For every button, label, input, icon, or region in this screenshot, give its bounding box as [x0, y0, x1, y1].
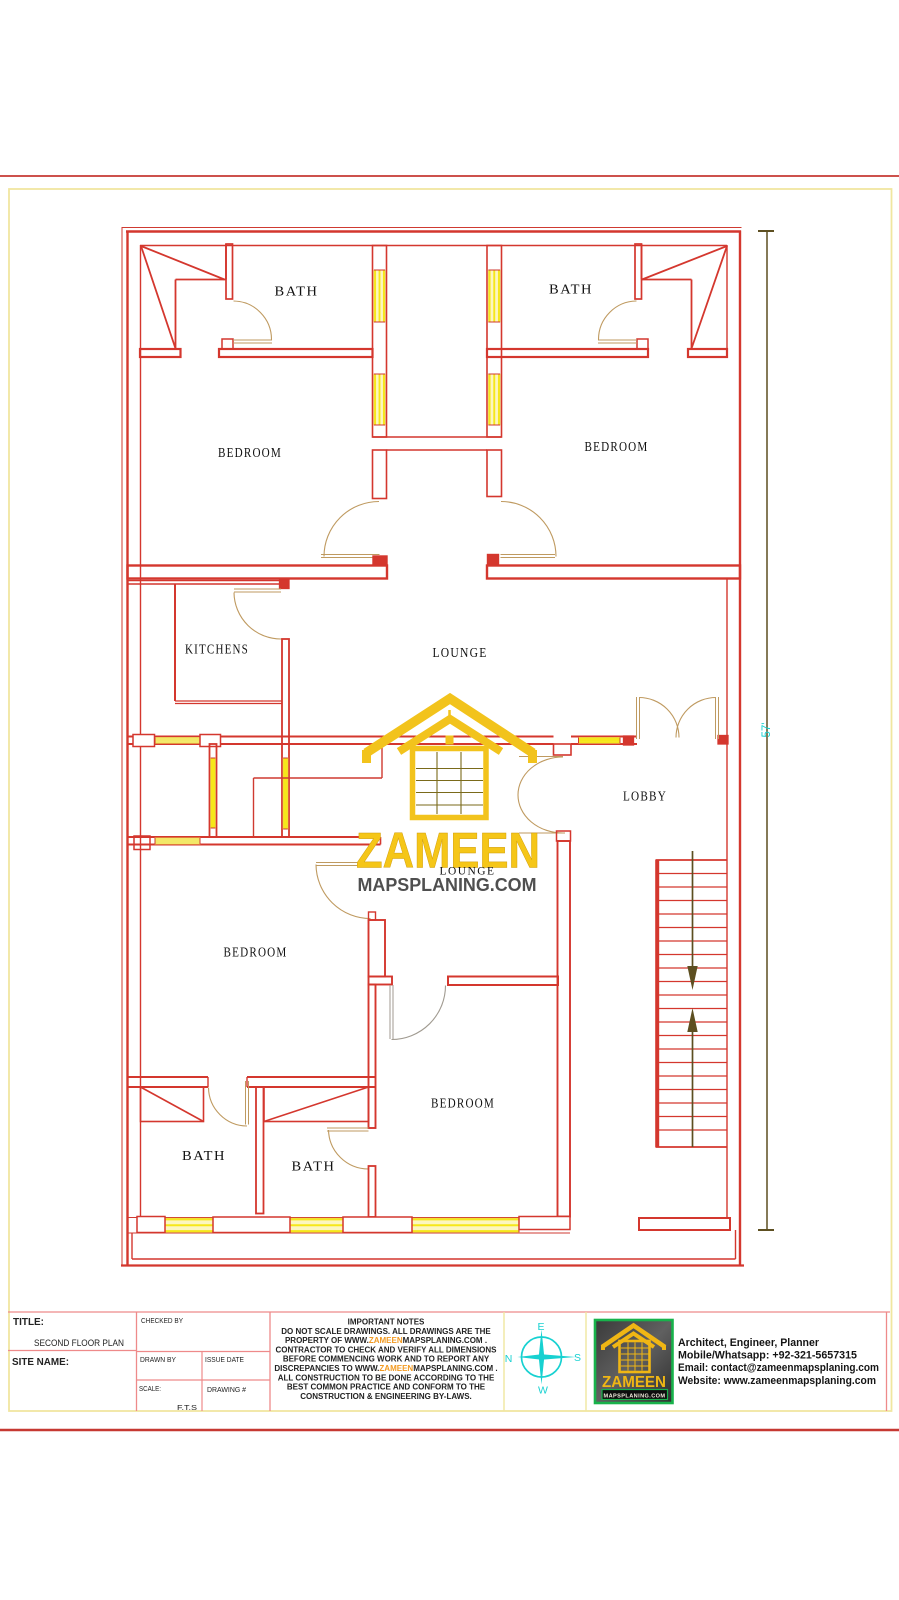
svg-text:LOBBY: LOBBY	[623, 790, 667, 805]
svg-text:PROPERTY OF WWW.ZAMEENMAPSPLA: PROPERTY OF WWW.ZAMEENMAPSPLANING.COM .	[285, 1336, 487, 1345]
svg-text:BEFORE COMMENCING WORK AND TO: BEFORE COMMENCING WORK AND TO REPORT ANY	[283, 1355, 490, 1364]
svg-text:Architect, Engineer, Planner: Architect, Engineer, Planner	[678, 1337, 819, 1349]
svg-text:Website: www.zameenmapsplaning: Website: www.zameenmapsplaning.com	[678, 1375, 876, 1387]
svg-text:LOUNGE: LOUNGE	[440, 866, 496, 878]
svg-text:DRAWN BY: DRAWN BY	[140, 1355, 176, 1364]
svg-text:BATH: BATH	[292, 1159, 336, 1174]
svg-text:BATH: BATH	[549, 283, 593, 298]
svg-text:BEDROOM: BEDROOM	[224, 946, 288, 961]
svg-text:KITCHENS: KITCHENS	[185, 642, 249, 657]
svg-text:SECOND FLOOR PLAN: SECOND FLOOR PLAN	[34, 1338, 124, 1348]
svg-text:ALL CONSTRUCTION TO BE DONE AC: ALL CONSTRUCTION TO BE DONE ACCORDING TO…	[278, 1373, 495, 1382]
svg-text:MAPSPLANING.COM: MAPSPLANING.COM	[604, 1393, 666, 1399]
svg-text:CONSTRUCTION & ENGINEERING BY-: CONSTRUCTION & ENGINEERING BY-LAWS.	[300, 1392, 472, 1401]
svg-text:BEDROOM: BEDROOM	[585, 440, 649, 455]
svg-text:LOUNGE: LOUNGE	[433, 646, 488, 661]
svg-text:BEDROOM: BEDROOM	[431, 1096, 495, 1111]
svg-text:Mobile/Whatsapp: +92-321-56573: Mobile/Whatsapp: +92-321-5657315	[678, 1350, 857, 1362]
svg-text:W: W	[538, 1385, 548, 1397]
svg-text:SITE NAME:: SITE NAME:	[12, 1356, 69, 1368]
svg-text:DO NOT SCALE DRAWINGS. ALL DRA: DO NOT SCALE DRAWINGS. ALL DRAWINGS ARE …	[281, 1327, 491, 1336]
svg-text:BEDROOM: BEDROOM	[218, 446, 282, 461]
svg-text:S: S	[574, 1352, 581, 1364]
svg-text:TITLE:: TITLE:	[13, 1316, 44, 1328]
svg-text:SCALE:: SCALE:	[139, 1384, 161, 1393]
svg-text:CONTRACTOR TO CHECK AND VERIFY: CONTRACTOR TO CHECK AND VERIFY ALL DIMEN…	[275, 1345, 497, 1354]
svg-text:BATH: BATH	[182, 1149, 226, 1164]
svg-text:N: N	[505, 1353, 513, 1365]
svg-text:57': 57'	[761, 723, 773, 738]
svg-text:ZAMEEN: ZAMEEN	[602, 1374, 666, 1391]
svg-text:IMPORTANT NOTES: IMPORTANT NOTES	[348, 1318, 425, 1327]
svg-text:E: E	[537, 1321, 544, 1333]
svg-text:DISCREPANCIES TO WWW.ZAMEENMAP: DISCREPANCIES TO WWW.ZAMEENMAPSPLANING.C…	[274, 1364, 497, 1373]
svg-text:BEST COMMON PRACTICE AND CONFO: BEST COMMON PRACTICE AND CONFORM TO THE	[287, 1383, 486, 1392]
svg-text:ISSUE DATE: ISSUE DATE	[205, 1355, 244, 1364]
svg-text:Email: contact@zameenmapsplani: Email: contact@zameenmapsplaning.com	[678, 1362, 879, 1374]
svg-text:F.T.S: F.T.S	[177, 1403, 197, 1412]
svg-text:CHECKED BY: CHECKED BY	[141, 1316, 183, 1325]
svg-text:BATH: BATH	[275, 285, 319, 300]
svg-text:DRAWING #: DRAWING #	[207, 1385, 247, 1394]
